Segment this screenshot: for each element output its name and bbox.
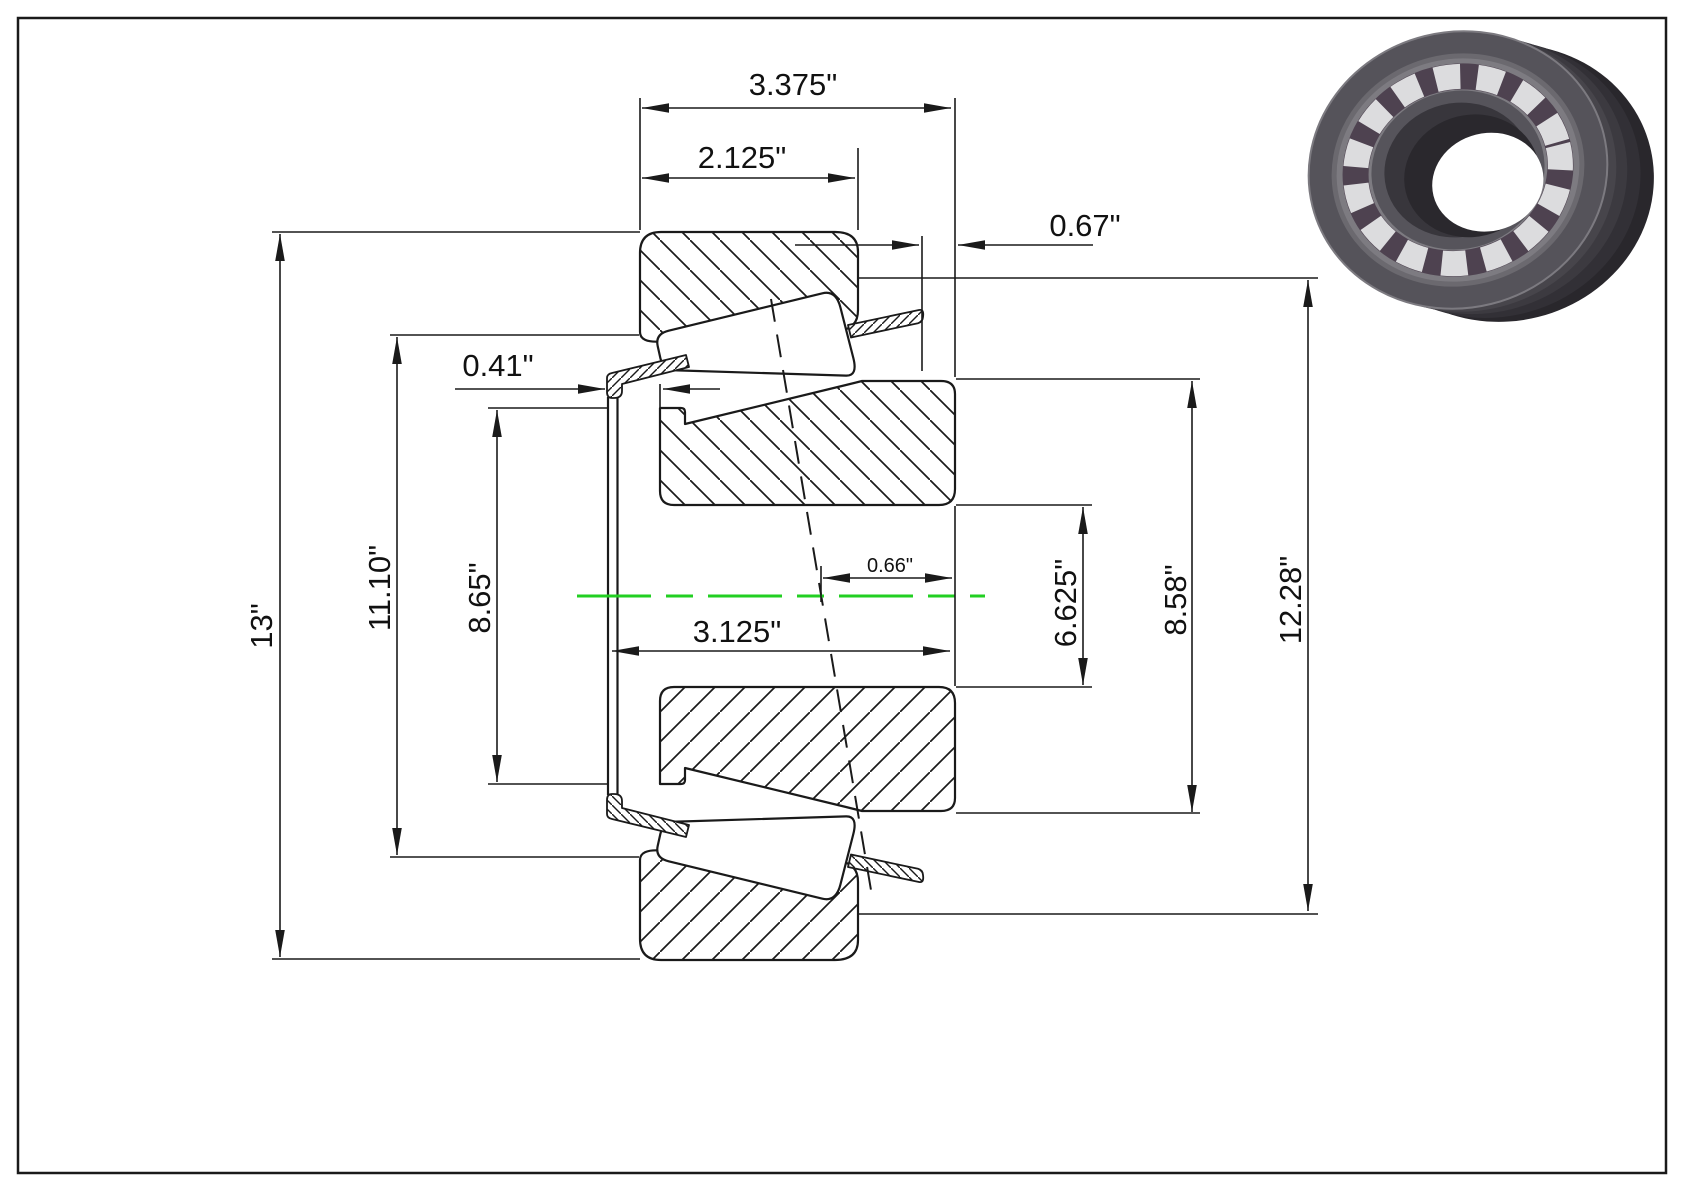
- dim-label-cup-od: 12.28": [1273, 556, 1308, 645]
- bearing-3d-render: [1279, 0, 1683, 363]
- dim-label-bore-dia: 6.625": [1048, 559, 1083, 648]
- cone-section: [660, 381, 955, 505]
- dim-label-overall-width: 3.375": [749, 67, 838, 102]
- bearing-bottom-half: [607, 687, 955, 960]
- dim-label-cup-width: 2.125": [698, 140, 787, 175]
- dim-label-back-rib-dia: 8.58": [1158, 564, 1193, 635]
- cage-strip-right: [848, 310, 923, 338]
- dim-label-front-rib-dia: 8.65": [462, 562, 497, 633]
- bearing-drawing-svg: 3.375" 2.125" 0.67" 0.41" 0.66" 3.125" 1…: [0, 0, 1684, 1191]
- bearing-top-half: [607, 232, 955, 505]
- dim-label-housing-dia: 13": [244, 603, 279, 649]
- dim-label-cone-width: 3.125": [693, 614, 782, 649]
- dim-label-flange-dia: 11.10": [362, 545, 397, 631]
- dim-label-standout-right: 0.67": [1049, 208, 1120, 243]
- dim-label-standout-left: 0.41": [462, 348, 533, 383]
- dim-label-load-center: 0.66": [867, 555, 913, 577]
- cage-strip-left: [607, 355, 689, 398]
- drawing-page: 3.375" 2.125" 0.67" 0.41" 0.66" 3.125" 1…: [0, 0, 1684, 1191]
